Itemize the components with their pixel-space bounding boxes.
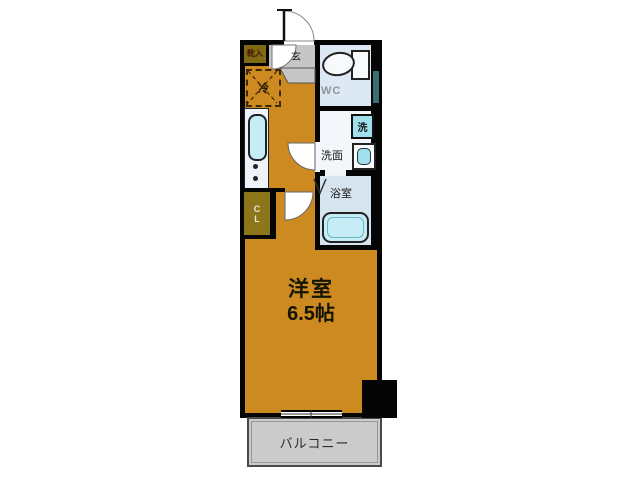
main-room-size: 6.5帖 bbox=[245, 302, 377, 326]
washroom-door-swing-icon bbox=[288, 143, 315, 170]
entrance-door-swing-icon bbox=[284, 11, 314, 41]
wc-label: WC bbox=[321, 85, 341, 97]
bathroom-doorway bbox=[325, 170, 346, 176]
washroom-doorway bbox=[315, 142, 320, 172]
floor-plan: 靴入 冷 C L 洗 バルコニー bbox=[0, 0, 640, 480]
entrance-label: 玄 bbox=[291, 48, 301, 63]
bathroom-label: 浴室 bbox=[330, 185, 352, 201]
entrance-step bbox=[280, 68, 315, 83]
main-room-name: 洋室 bbox=[245, 277, 377, 302]
main-room-door-swing-icon bbox=[285, 192, 313, 220]
main-room-label: 洋室 6.5帖 bbox=[245, 277, 377, 326]
bathroom-folding-door-icon bbox=[314, 179, 326, 193]
linework-overlay bbox=[0, 0, 640, 480]
washroom-label: 洗面 bbox=[321, 147, 343, 163]
